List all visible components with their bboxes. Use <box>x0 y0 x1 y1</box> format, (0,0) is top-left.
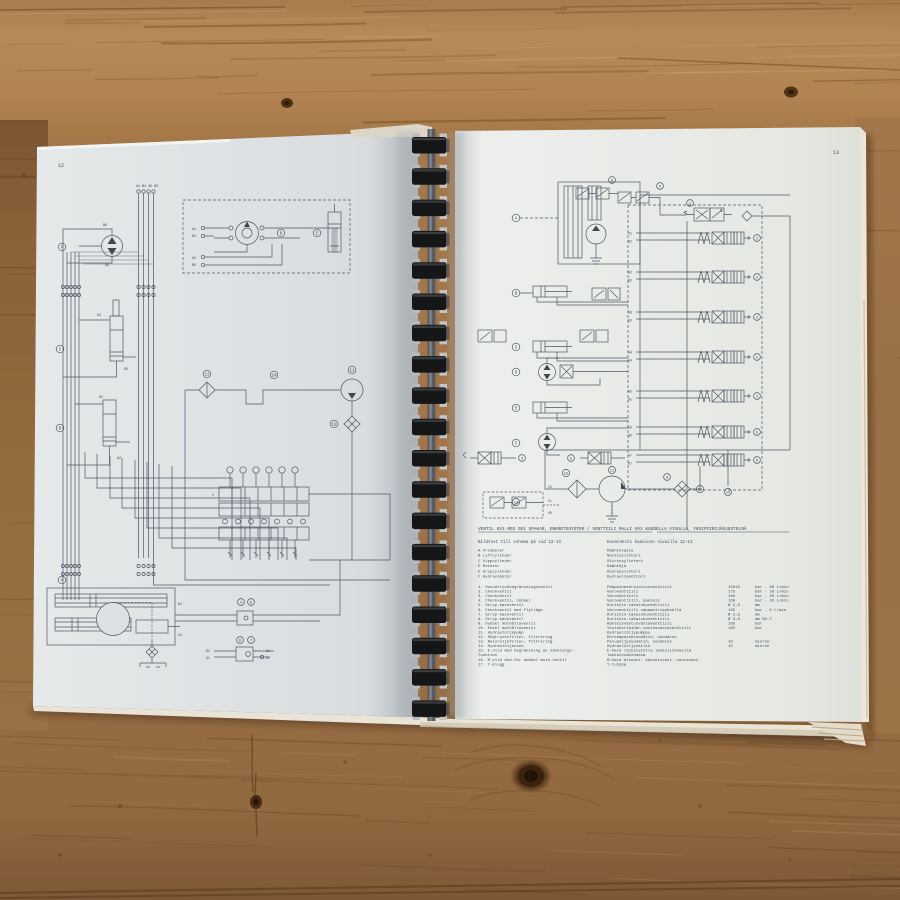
svg-text:15: 15 <box>564 472 569 476</box>
svg-text:C Vippcylinder: C Vippcylinder <box>478 559 512 564</box>
svg-text:A4: A4 <box>628 351 632 355</box>
svg-text:bar - 60 L/min: bar - 60 L/min <box>755 585 789 590</box>
svg-text:Siirtosylinteri: Siirtosylinteri <box>607 559 644 564</box>
svg-text:A2: A2 <box>117 457 121 461</box>
svg-text:B2: B2 <box>628 279 632 283</box>
svg-text:B1: B1 <box>266 649 270 653</box>
svg-text:bar: bar <box>755 626 763 631</box>
svg-text:185: 185 <box>728 622 736 626</box>
svg-text:Hydraulimoottori: Hydraulimoottori <box>607 575 646 580</box>
svg-text:A3: A3 <box>97 314 101 318</box>
svg-text:10: 10 <box>728 641 733 645</box>
svg-text:V1: V1 <box>548 499 552 503</box>
svg-text:A4 B4 A5 B5: A4 B4 A5 B5 <box>136 185 158 189</box>
svg-text:Korkeapainesuodatin, suodatus: Korkeapainesuodatin, suodatus <box>607 635 677 640</box>
svg-text:B5: B5 <box>628 398 632 402</box>
svg-text:15. E-slid med begränsning av: 15. E-slid med begränsning av sänknings- <box>478 649 574 654</box>
svg-text:A1: A1 <box>206 656 210 660</box>
svg-text:M-kara Ainoast. kaksoisvast.-v: M-kara Ainoast. kaksoisvast.-vastavent. <box>607 658 701 663</box>
svg-text:mm GV-7: mm GV-7 <box>755 618 772 622</box>
svg-text:Kuvateksti kaavioon sivuilla 1: Kuvateksti kaavioon sivuilla 12-13 <box>607 540 693 545</box>
svg-text:Varoventtiili: Varoventtiili <box>607 590 639 595</box>
svg-text:11: 11 <box>610 469 615 473</box>
svg-text:A1: A1 <box>628 232 632 236</box>
svg-text:D Rotator: D Rotator <box>478 564 500 569</box>
svg-text:E-kara rajoitetulla laskuliikk: E-kara rajoitetulla laskuliikkeellä <box>607 649 692 654</box>
svg-text:Ø 2,5: Ø 2,5 <box>728 603 741 608</box>
svg-text:B7: B7 <box>628 462 632 466</box>
svg-text:Kourasylinteri: Kourasylinteri <box>607 569 641 574</box>
svg-text:16. M-slid änd.för dubbel moth: 16. M-slid änd.för dubbel moth.ventil <box>478 658 567 663</box>
svg-text:bar: bar <box>755 621 763 626</box>
svg-text:11. Hydrauloljepump: 11. Hydrauloljepump <box>478 631 524 636</box>
svg-text:B1: B1 <box>628 240 632 244</box>
svg-text:Ø 3,0: Ø 3,0 <box>728 617 741 622</box>
svg-text:A1: A1 <box>178 634 182 638</box>
svg-text:bar - 0 L/min: bar - 0 L/min <box>755 608 787 613</box>
svg-text:4. Chockventil, dubbel: 4. Chockventil, dubbel <box>478 599 531 604</box>
svg-text:B4: B4 <box>628 359 632 363</box>
svg-text:B6: B6 <box>628 434 632 438</box>
svg-text:B4: B4 <box>192 235 196 239</box>
svg-text:Kuristin-takaiskuventtiili: Kuristin-takaiskuventtiili <box>607 617 670 622</box>
svg-text:1. Huvudtryckbegränsningsventi: 1. Huvudtryckbegränsningsventil <box>478 585 553 590</box>
svg-text:V3: V3 <box>548 485 552 489</box>
svg-text:B6: B6 <box>103 224 107 228</box>
svg-text:A2: A2 <box>628 271 632 275</box>
svg-text:Pääpaineenrajoitusventtiili: Pääpaineenrajoitusventtiili <box>607 585 672 590</box>
svg-text:Kaksoisvastusvastaventtiili: Kaksoisvastusvastaventtiili <box>607 621 672 626</box>
svg-text:175: 175 <box>728 591 736 595</box>
svg-text:B1: B1 <box>178 603 182 607</box>
svg-text:Kääntäjä: Kääntäjä <box>607 564 627 569</box>
svg-text:9. Dubbel mothållaventil: 9. Dubbel mothållaventil <box>478 621 536 626</box>
svg-text:Y-tulppa: Y-tulppa <box>607 662 627 667</box>
svg-text:Hydrauliöljypumppu: Hydrauliöljypumppu <box>607 631 651 636</box>
svg-text:A6: A6 <box>628 426 632 430</box>
svg-text:150±5: 150±5 <box>728 586 741 590</box>
svg-text:B Lyftcylinder: B Lyftcylinder <box>478 554 512 559</box>
svg-text:mm: mm <box>755 604 760 608</box>
svg-text:Kuristin-takaiskuventtiili: Kuristin-takaiskuventtiili <box>607 603 670 608</box>
svg-text:Paluuöljysuodatin, suodatus: Paluuöljysuodatin, suodatus <box>607 640 672 645</box>
svg-text:14: 14 <box>271 375 277 379</box>
svg-text:B1: B1 <box>206 649 210 653</box>
svg-text:12. Högtrycksfilter, filtrerin: 12. Högtrycksfilter, filtrering <box>478 635 553 640</box>
svg-text:Nostosylinteri: Nostosylinteri <box>607 554 641 559</box>
svg-text:160: 160 <box>728 600 736 604</box>
svg-text:2. Chockventil: 2. Chockventil <box>478 590 512 595</box>
svg-text:funktion: funktion <box>478 653 498 658</box>
svg-text:190: 190 <box>728 595 736 599</box>
svg-text:Ø 2,5: Ø 2,5 <box>728 612 741 617</box>
svg-text:15: 15 <box>728 645 733 649</box>
svg-text:12: 12 <box>331 424 337 428</box>
svg-text:F Hydraulmotor: F Hydraulmotor <box>478 575 512 580</box>
svg-text:Kuristin-takaiskuventtiili: Kuristin-takaiskuventtiili <box>607 612 670 617</box>
svg-text:laskutoiminnassa: laskutoiminnassa <box>607 653 646 658</box>
svg-text:Bildtext till schema på sid 12: Bildtext till schema på sid 12-13 <box>478 540 561 545</box>
svg-text:bar - 20 L/min: bar - 20 L/min <box>755 599 789 604</box>
svg-text:13: 13 <box>726 491 731 495</box>
svg-text:A1: A1 <box>266 656 270 660</box>
svg-text:bar - 20 L/min: bar - 20 L/min <box>755 590 789 595</box>
svg-text:7. Stryp-backventil: 7. Stryp-backventil <box>478 612 524 617</box>
svg-text:B3: B3 <box>124 368 128 372</box>
svg-text:V: V <box>212 493 214 497</box>
svg-text:A Vridmotor: A Vridmotor <box>478 549 505 554</box>
svg-text:Yksinkertainen vastusvastavent: Yksinkertainen vastusvastaventtiili <box>607 626 692 631</box>
svg-text:bar - 20 L/min: bar - 20 L/min <box>755 594 789 599</box>
svg-text:B5: B5 <box>192 264 196 268</box>
svg-text:VENTIL HV3 MED SEX SPAKAR, ENK: VENTIL HV3 MED SEX SPAKAR, ENKRETSSYSTEM… <box>478 525 747 532</box>
svg-text:145: 145 <box>728 609 736 613</box>
svg-text:Hydrauliöljysäiliö: Hydrauliöljysäiliö <box>607 644 651 649</box>
svg-text:8. Stryp-backventil: 8. Stryp-backventil <box>478 617 524 622</box>
svg-text:A6: A6 <box>105 264 109 268</box>
svg-text:13: 13 <box>833 150 839 156</box>
svg-text:14. Hydrauloljetank: 14. Hydrauloljetank <box>478 644 524 649</box>
svg-text:12: 12 <box>58 163 64 169</box>
svg-text:mm: mm <box>755 613 760 617</box>
svg-text:6. Chockventil med flytläge: 6. Chockventil med flytläge <box>478 608 543 613</box>
svg-text:A7: A7 <box>628 454 632 458</box>
svg-text:17. Y-plugg: 17. Y-plugg <box>478 662 505 667</box>
svg-text:11: 11 <box>349 370 355 374</box>
svg-text:A4: A4 <box>192 228 196 232</box>
svg-text:Kääntölaite: Kääntölaite <box>607 549 634 554</box>
svg-text:Varoventtiili vapaavirtauksell: Varoventtiili vapaavirtauksella <box>607 608 682 613</box>
svg-text:5. Stryp-backventil: 5. Stryp-backventil <box>478 603 524 608</box>
svg-text:A5: A5 <box>192 257 196 261</box>
svg-text:micron: micron <box>755 644 770 649</box>
svg-text:13: 13 <box>204 374 210 378</box>
svg-text:3. Chockventil: 3. Chockventil <box>478 594 512 599</box>
svg-text:B3: B3 <box>628 319 632 323</box>
svg-text:185: 185 <box>728 627 736 631</box>
svg-text:B2: B2 <box>99 396 103 400</box>
svg-text:13. Returoljefilter, filtrerin: 13. Returoljefilter, filtrering <box>478 640 553 645</box>
svg-text:OR: OR <box>548 511 552 515</box>
svg-text:7: 7 <box>250 639 252 643</box>
svg-text:E Gripcylinder: E Gripcylinder <box>478 569 512 574</box>
svg-text:A3: A3 <box>628 311 632 315</box>
svg-text:Varoventtiili: Varoventtiili <box>607 594 639 599</box>
svg-text:10. Enkel mothållaventil: 10. Enkel mothållaventil <box>478 626 536 631</box>
svg-text:10: 10 <box>698 488 703 492</box>
svg-text:A5: A5 <box>628 390 632 394</box>
svg-text:micron: micron <box>755 640 770 645</box>
svg-text:Varoventtiili, kaksois: Varoventtiili, kaksois <box>607 599 660 604</box>
